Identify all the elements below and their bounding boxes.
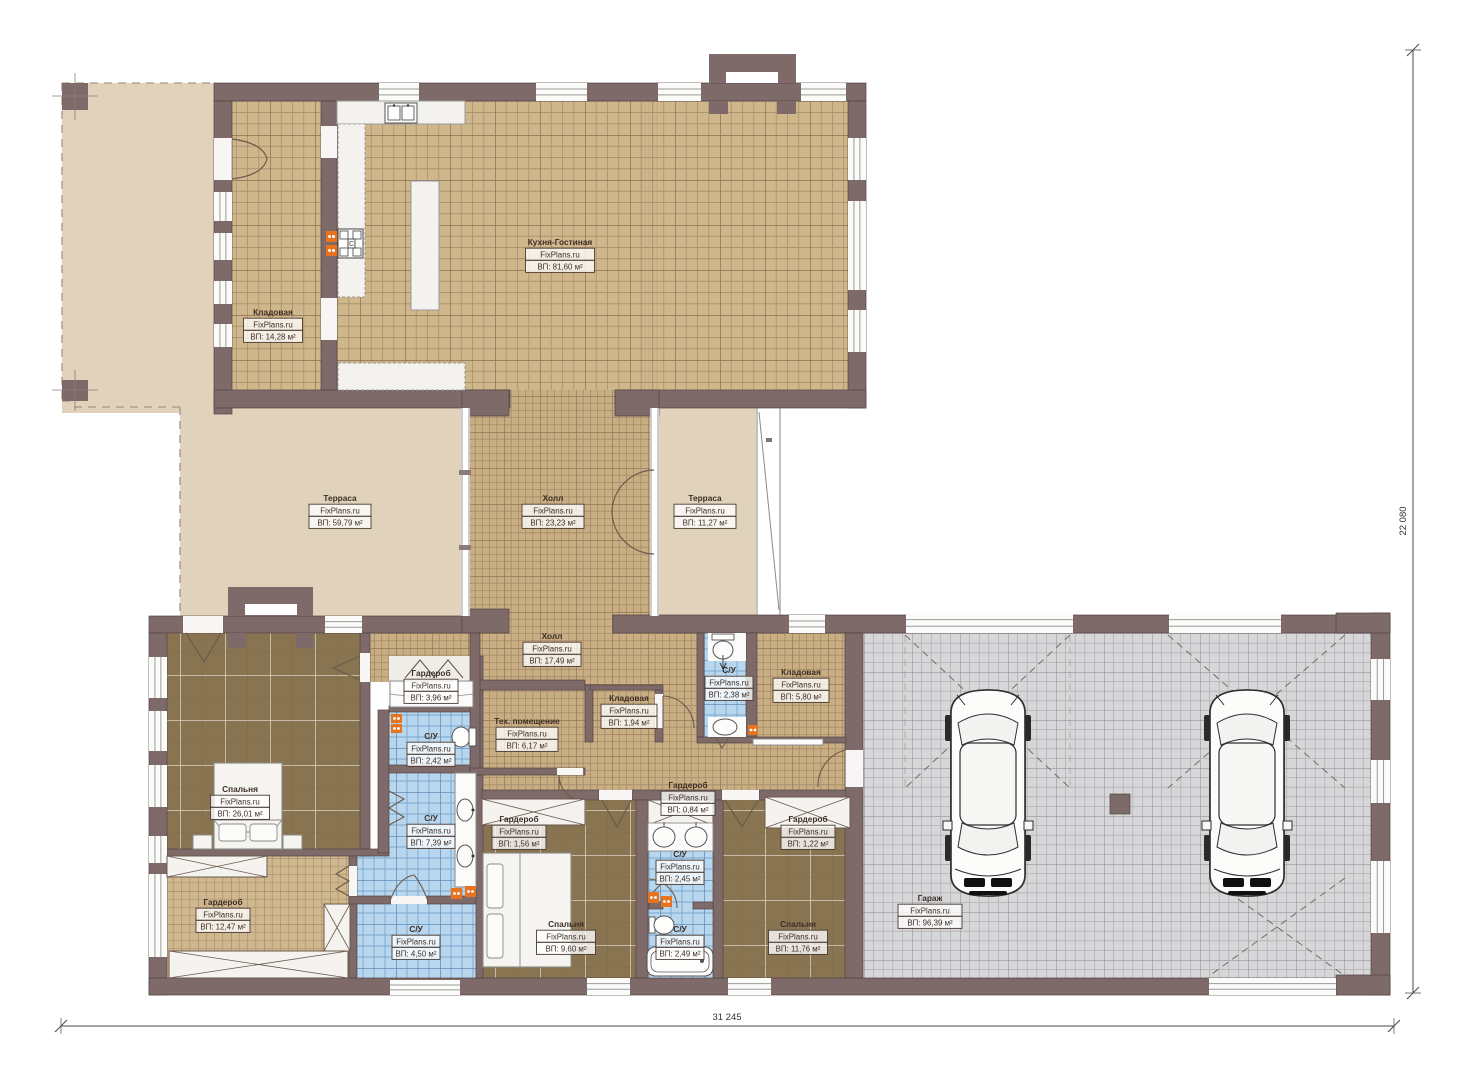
svg-text:FixPlans.ru: FixPlans.ru — [203, 911, 242, 920]
svg-text:Холл: Холл — [543, 493, 564, 503]
svg-text:Гардероб: Гардероб — [499, 814, 538, 824]
svg-text:FixPlans.ru: FixPlans.ru — [685, 507, 724, 516]
svg-text:FixPlans.ru: FixPlans.ru — [660, 863, 699, 872]
svg-text:Спальня: Спальня — [780, 919, 816, 929]
svg-text:FixPlans.ru: FixPlans.ru — [411, 827, 450, 836]
svg-text:С/У: С/У — [722, 665, 736, 675]
svg-text:С/У: С/У — [673, 924, 687, 934]
svg-text:С/У: С/У — [409, 924, 423, 934]
svg-text:FixPlans.ru: FixPlans.ru — [533, 507, 572, 516]
svg-text:ВП: 14,28 м²: ВП: 14,28 м² — [250, 333, 296, 342]
svg-text:Спальня: Спальня — [222, 784, 258, 794]
svg-text:FixPlans.ru: FixPlans.ru — [253, 321, 292, 330]
svg-text:FixPlans.ru: FixPlans.ru — [546, 933, 585, 942]
svg-text:ВП: 0,84 м²: ВП: 0,84 м² — [668, 806, 709, 815]
svg-text:ВП: 11,76 м²: ВП: 11,76 м² — [776, 945, 821, 954]
svg-text:31 245: 31 245 — [712, 1012, 741, 1023]
svg-text:ВП: 2,38 м²: ВП: 2,38 м² — [709, 691, 750, 700]
svg-text:ВП: 11,27 м²: ВП: 11,27 м² — [683, 519, 728, 528]
svg-text:ВП: 1,56 м²: ВП: 1,56 м² — [499, 840, 540, 849]
svg-text:FixPlans.ru: FixPlans.ru — [609, 707, 648, 716]
svg-text:Гардероб: Гардероб — [788, 814, 827, 824]
svg-text:FixPlans.ru: FixPlans.ru — [788, 828, 827, 837]
svg-text:ВП: 81,60 м²: ВП: 81,60 м² — [537, 263, 583, 272]
svg-text:С/У: С/У — [424, 731, 438, 741]
svg-text:Терраса: Терраса — [688, 493, 722, 503]
svg-text:Гардероб: Гардероб — [203, 897, 242, 907]
svg-text:ВП: 96,39 м²: ВП: 96,39 м² — [907, 919, 953, 928]
svg-text:FixPlans.ru: FixPlans.ru — [910, 907, 949, 916]
svg-text:ВП: 17,49 м²: ВП: 17,49 м² — [529, 657, 575, 666]
svg-text:FixPlans.ru: FixPlans.ru — [320, 507, 359, 516]
svg-text:FixPlans.ru: FixPlans.ru — [507, 730, 546, 739]
svg-text:Тех. помещение: Тех. помещение — [494, 716, 560, 726]
svg-text:FixPlans.ru: FixPlans.ru — [411, 745, 450, 754]
svg-text:22 080: 22 080 — [1398, 506, 1409, 535]
svg-text:FixPlans.ru: FixPlans.ru — [532, 645, 571, 654]
svg-text:Кухня-Гостиная: Кухня-Гостиная — [528, 237, 593, 247]
svg-text:Кладовая: Кладовая — [253, 307, 293, 317]
svg-text:FixPlans.ru: FixPlans.ru — [396, 938, 435, 947]
svg-text:Гараж: Гараж — [918, 893, 943, 903]
svg-text:ВП: 2,49 м²: ВП: 2,49 м² — [660, 950, 701, 959]
svg-text:FixPlans.ru: FixPlans.ru — [220, 798, 259, 807]
svg-text:ВП: 23,23 м²: ВП: 23,23 м² — [530, 519, 576, 528]
svg-text:ВП: 1,22 м²: ВП: 1,22 м² — [788, 840, 829, 849]
svg-text:ВП: 2,42 м²: ВП: 2,42 м² — [411, 757, 452, 766]
svg-text:FixPlans.ru: FixPlans.ru — [709, 679, 748, 688]
svg-text:Спальня: Спальня — [548, 919, 584, 929]
svg-text:С/У: С/У — [673, 849, 687, 859]
svg-text:Терраса: Терраса — [323, 493, 357, 503]
svg-text:FixPlans.ru: FixPlans.ru — [668, 794, 707, 803]
svg-text:FixPlans.ru: FixPlans.ru — [499, 828, 538, 837]
svg-text:ВП: 12,47 м²: ВП: 12,47 м² — [200, 923, 246, 932]
svg-text:ВП: 2,45 м²: ВП: 2,45 м² — [660, 875, 701, 884]
svg-text:FixPlans.ru: FixPlans.ru — [778, 933, 817, 942]
svg-text:Гардероб: Гардероб — [411, 668, 450, 678]
svg-text:С/У: С/У — [424, 813, 438, 823]
svg-text:FixPlans.ru: FixPlans.ru — [411, 682, 450, 691]
svg-text:ВП: 5,80 м²: ВП: 5,80 м² — [781, 693, 822, 702]
svg-text:Кладовая: Кладовая — [609, 693, 649, 703]
svg-text:FixPlans.ru: FixPlans.ru — [781, 681, 820, 690]
svg-text:Холл: Холл — [542, 631, 563, 641]
svg-text:ВП: 3,96 м²: ВП: 3,96 м² — [411, 694, 452, 703]
svg-text:ВП: 7,39 м²: ВП: 7,39 м² — [411, 839, 452, 848]
svg-text:FixPlans.ru: FixPlans.ru — [660, 938, 699, 947]
svg-text:FixPlans.ru: FixPlans.ru — [540, 251, 579, 260]
svg-text:ВП: 26,01 м²: ВП: 26,01 м² — [217, 810, 263, 819]
svg-text:ВП: 1,94 м²: ВП: 1,94 м² — [609, 719, 650, 728]
svg-text:Гардероб: Гардероб — [668, 780, 707, 790]
svg-text:ВП: 4,50 м²: ВП: 4,50 м² — [396, 950, 437, 959]
svg-text:Кладовая: Кладовая — [781, 667, 821, 677]
svg-text:ВП: 9,60 м²: ВП: 9,60 м² — [546, 945, 587, 954]
svg-text:ВП: 6,17 м²: ВП: 6,17 м² — [507, 742, 548, 751]
svg-text:ВП: 59,79 м²: ВП: 59,79 м² — [317, 519, 363, 528]
svg-text:C: C — [349, 241, 354, 248]
